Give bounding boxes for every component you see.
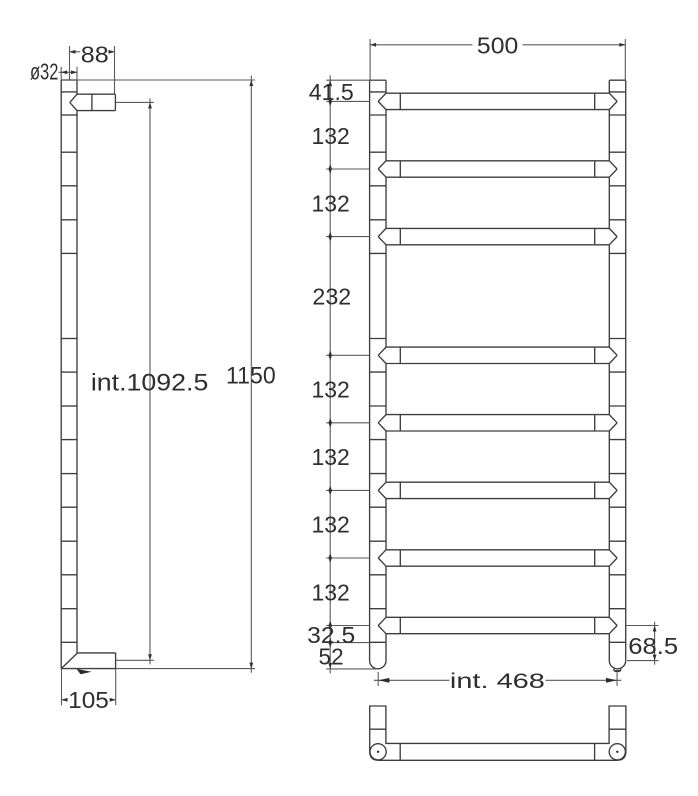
svg-text:88: 88 — [81, 42, 109, 68]
svg-text:68.5: 68.5 — [628, 633, 678, 659]
svg-text:132: 132 — [311, 190, 349, 216]
svg-text:132: 132 — [311, 123, 349, 149]
svg-text:232: 232 — [312, 284, 351, 310]
svg-text:int. 468: int. 468 — [450, 670, 545, 693]
svg-text:ø32: ø32 — [30, 59, 59, 85]
svg-text:105: 105 — [68, 687, 109, 713]
svg-text:132: 132 — [311, 512, 349, 538]
svg-text:1150: 1150 — [226, 363, 276, 390]
svg-text:41.5: 41.5 — [309, 79, 354, 105]
svg-text:int.1092.5: int.1092.5 — [91, 369, 209, 396]
svg-text:132: 132 — [311, 579, 349, 605]
svg-text:52: 52 — [319, 643, 344, 669]
svg-text:132: 132 — [311, 444, 349, 470]
svg-text:132: 132 — [311, 377, 349, 403]
svg-text:500: 500 — [477, 32, 518, 58]
